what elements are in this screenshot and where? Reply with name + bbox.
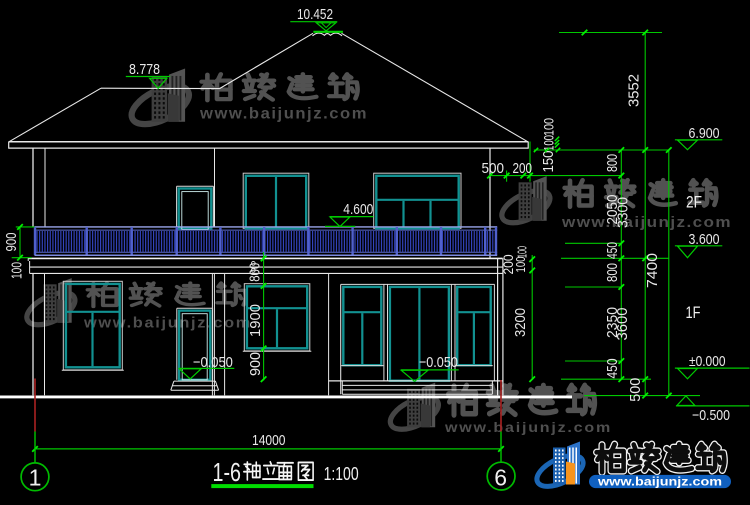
svg-text:150: 150 [540, 151, 557, 173]
svg-text:3552: 3552 [626, 74, 643, 107]
svg-text:200: 200 [513, 160, 533, 177]
svg-text:500: 500 [627, 378, 644, 402]
svg-text:www.baijunjz.com: www.baijunjz.com [444, 420, 612, 435]
svg-text:1-6: 1-6 [213, 457, 242, 487]
svg-text:7400: 7400 [644, 253, 661, 288]
svg-text:6: 6 [494, 464, 507, 490]
svg-text:800: 800 [604, 263, 621, 282]
svg-text:10.452: 10.452 [297, 6, 333, 23]
svg-text:www.baijunjz.com: www.baijunjz.com [597, 477, 722, 489]
svg-text:900: 900 [247, 352, 264, 376]
svg-text:3600: 3600 [614, 308, 631, 341]
svg-text:100: 100 [541, 118, 557, 136]
svg-text:450: 450 [604, 242, 621, 259]
svg-text:±0.000: ±0.000 [689, 353, 726, 370]
svg-text:3200: 3200 [512, 308, 529, 337]
svg-text:www.baijunjz.com: www.baijunjz.com [199, 106, 368, 123]
svg-text:14000: 14000 [252, 432, 286, 449]
svg-text:2F: 2F [686, 193, 702, 211]
svg-text:800: 800 [247, 263, 264, 282]
svg-text:www.baijunjz.com: www.baijunjz.com [83, 316, 252, 332]
svg-text:3300: 3300 [615, 197, 632, 228]
svg-text:450: 450 [604, 359, 621, 379]
svg-text:4.600: 4.600 [343, 201, 373, 218]
svg-text:1: 1 [29, 464, 42, 490]
svg-text:www.baijunjz.com: www.baijunjz.com [561, 215, 732, 231]
svg-text:100: 100 [514, 246, 529, 258]
svg-text:1F: 1F [686, 304, 701, 322]
svg-text:100: 100 [513, 257, 528, 273]
svg-text:8.778: 8.778 [129, 61, 160, 78]
svg-text:1900: 1900 [247, 304, 264, 337]
svg-text:800: 800 [604, 154, 621, 172]
svg-text:−0.500: −0.500 [692, 407, 730, 424]
svg-text:100: 100 [8, 262, 25, 279]
svg-text:1:100: 1:100 [324, 463, 359, 484]
svg-text:900: 900 [3, 233, 20, 252]
svg-text:−0.050: −0.050 [419, 354, 458, 371]
svg-text:500: 500 [482, 160, 505, 177]
